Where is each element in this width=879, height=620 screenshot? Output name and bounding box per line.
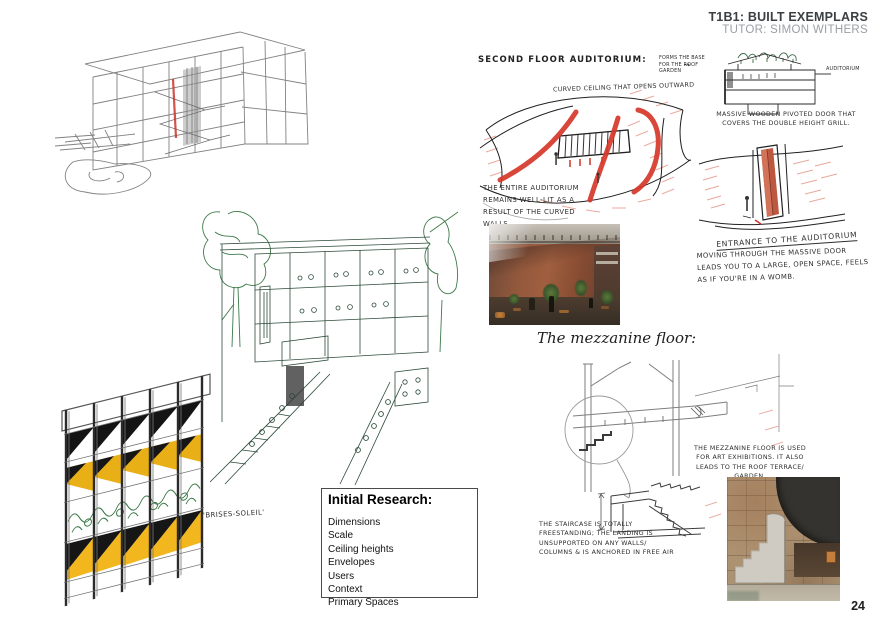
research-item: Envelopes bbox=[328, 556, 471, 569]
auditorium-section-label: AUDITORIUM bbox=[826, 66, 860, 73]
portfolio-page: T1B1: BUILT EXEMPLARS TUTOR: SIMON WITHE… bbox=[0, 0, 879, 620]
research-item: Ceiling heights bbox=[328, 543, 471, 556]
research-item: Scale bbox=[328, 529, 471, 542]
photo-stair-shape bbox=[733, 505, 803, 595]
research-item: Users bbox=[328, 570, 471, 583]
auditorium-heading: SECOND FLOOR AUDITORIUM: bbox=[478, 55, 647, 65]
page-number: 24 bbox=[851, 599, 865, 613]
staircase-photo bbox=[727, 477, 840, 601]
project-title: T1B1: BUILT EXEMPLARS bbox=[708, 10, 868, 24]
brises-soleil-facade-sketch bbox=[48, 368, 240, 610]
arrow-to-section: → bbox=[684, 61, 690, 69]
pivoted-door-sketch bbox=[695, 136, 847, 232]
page-header: T1B1: BUILT EXEMPLARS TUTOR: SIMON WITHE… bbox=[708, 10, 868, 38]
auditorium-section-sketch bbox=[693, 48, 843, 116]
tutor-subtitle: TUTOR: SIMON WITHERS bbox=[708, 24, 868, 37]
initial-research-box: Initial Research: Dimensions Scale Ceili… bbox=[321, 488, 478, 598]
building-perspective-sketch bbox=[55, 22, 340, 218]
brises-soleil-label: 'BRISES-SOLEIL' bbox=[203, 506, 265, 521]
entrance-note: MOVING THROUGH THE MASSIVE DOOR LEADS YO… bbox=[696, 244, 869, 286]
research-item: Dimensions bbox=[328, 516, 471, 529]
pivoted-door-note: MASSIVE WOODEN PIVOTED DOOR THAT COVERS … bbox=[710, 110, 862, 129]
mezzanine-heading: The mezzanine floor: bbox=[537, 329, 696, 347]
research-item: Context bbox=[328, 583, 471, 596]
research-title: Initial Research: bbox=[328, 492, 471, 507]
auditorium-photo bbox=[489, 224, 620, 325]
staircase-note: THE STAIRCASE IS TOTALLY FREESTANDING; T… bbox=[539, 520, 677, 558]
research-item: Primary Spaces bbox=[328, 596, 471, 609]
